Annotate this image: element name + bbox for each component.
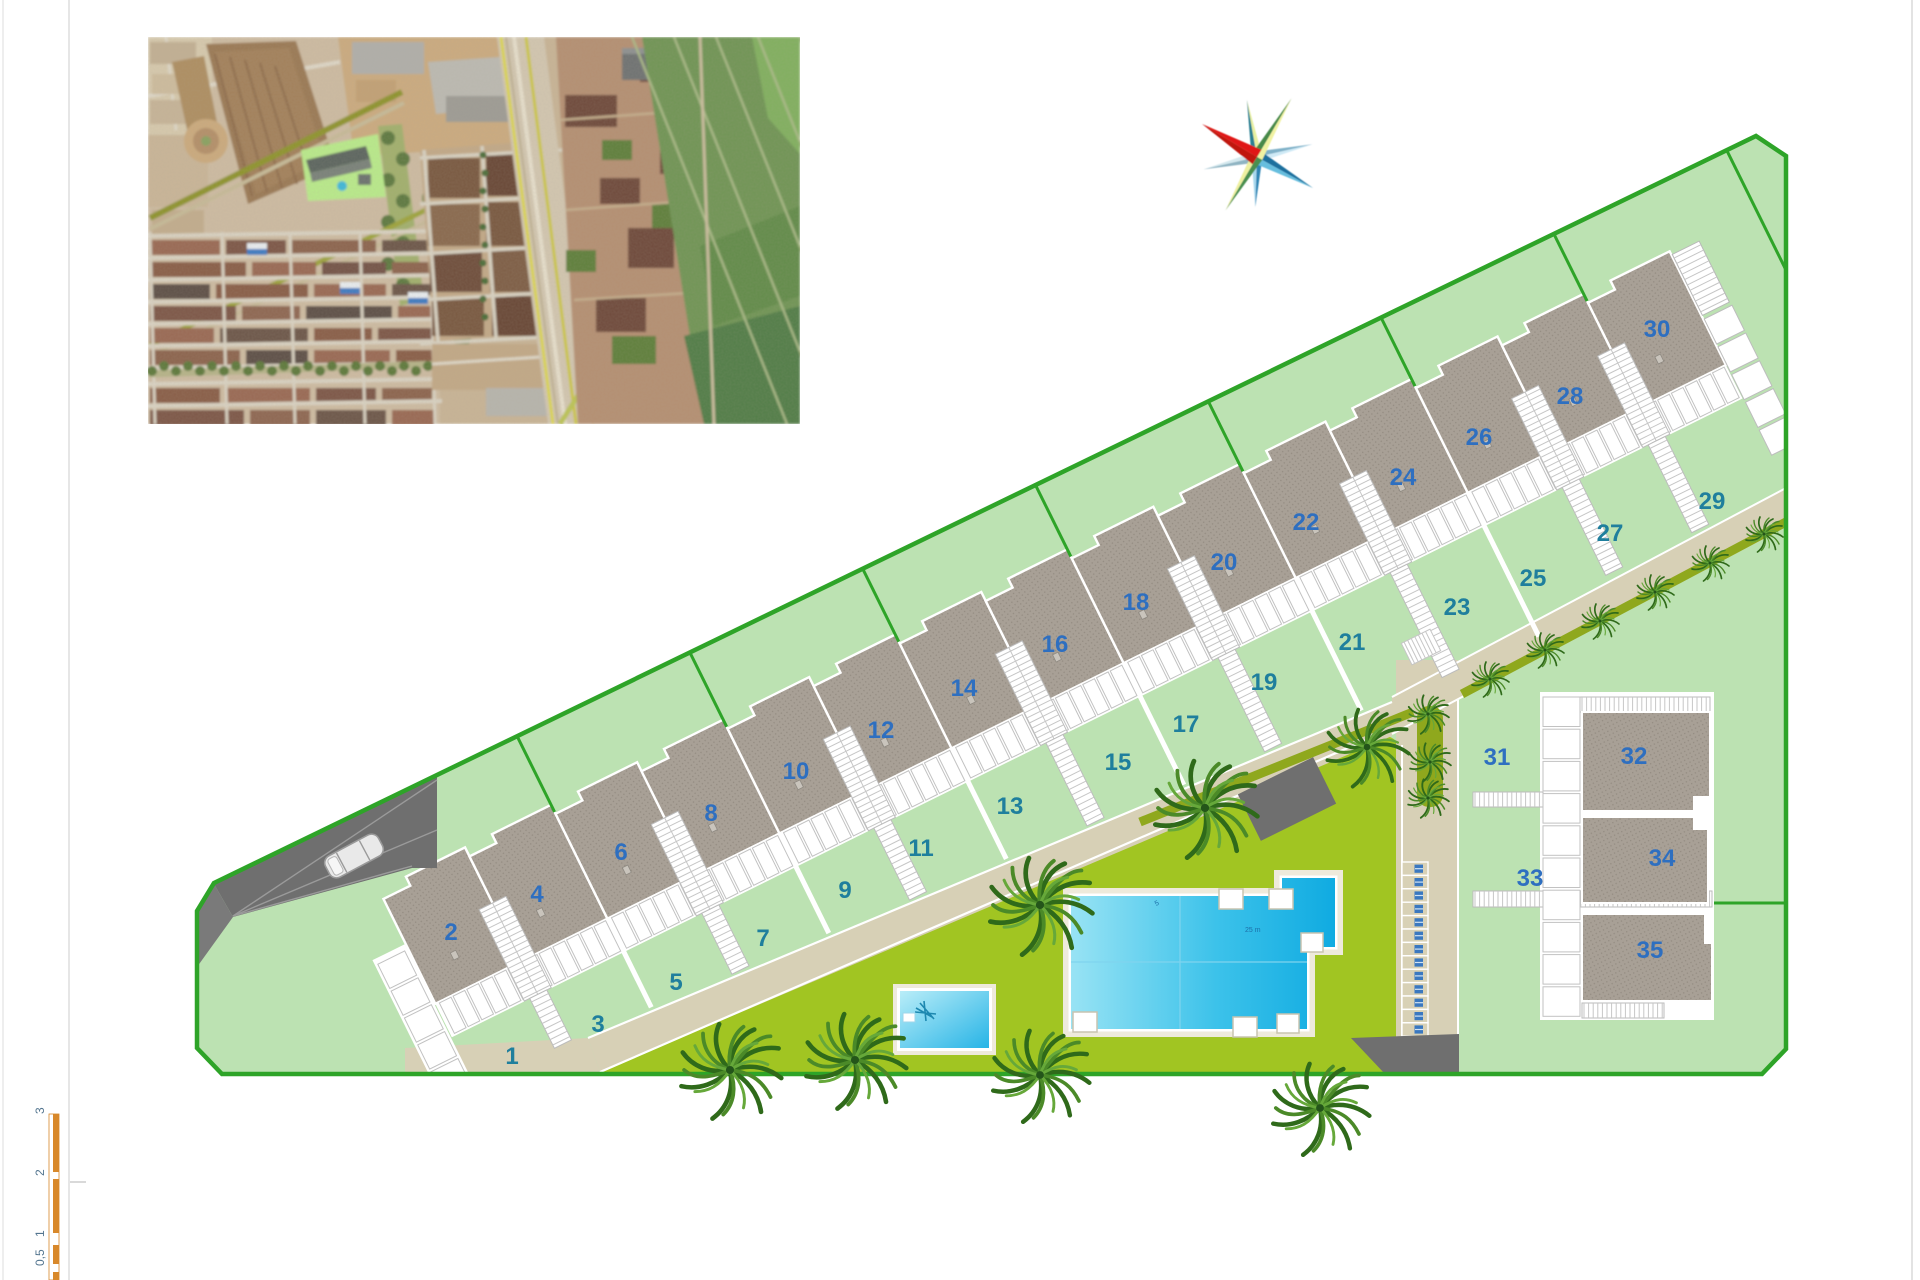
svg-text:25 m: 25 m: [1245, 927, 1261, 934]
svg-text:25: 25: [1520, 565, 1547, 592]
svg-text:21: 21: [1339, 629, 1366, 656]
svg-text:26: 26: [1466, 424, 1493, 451]
svg-text:17: 17: [1173, 711, 1200, 738]
svg-text:23: 23: [1444, 594, 1471, 621]
svg-text:12: 12: [868, 717, 895, 744]
svg-text:18: 18: [1123, 589, 1150, 616]
svg-text:32: 32: [1621, 743, 1648, 770]
svg-text:22: 22: [1293, 509, 1320, 536]
svg-text:35: 35: [1637, 937, 1664, 964]
svg-text:3: 3: [591, 1011, 604, 1038]
svg-text:15: 15: [1105, 749, 1132, 776]
svg-text:1: 1: [33, 1230, 47, 1237]
svg-text:7: 7: [756, 925, 769, 952]
svg-text:33: 33: [1517, 865, 1544, 892]
svg-text:14: 14: [951, 675, 978, 702]
svg-text:8: 8: [704, 800, 717, 827]
svg-text:34: 34: [1649, 845, 1676, 872]
svg-text:6: 6: [614, 839, 627, 866]
svg-text:9: 9: [838, 877, 851, 904]
svg-text:24: 24: [1390, 464, 1417, 491]
svg-text:2: 2: [444, 919, 457, 946]
svg-text:13: 13: [997, 793, 1024, 820]
svg-text:5: 5: [669, 969, 682, 996]
svg-text:10: 10: [783, 758, 810, 785]
svg-text:30: 30: [1644, 316, 1671, 343]
svg-text:27: 27: [1597, 520, 1624, 547]
svg-text:0,5: 0,5: [33, 1249, 47, 1266]
svg-text:20: 20: [1211, 549, 1238, 576]
svg-text:11: 11: [908, 835, 933, 862]
svg-text:31: 31: [1484, 744, 1511, 771]
svg-text:16: 16: [1042, 631, 1069, 658]
svg-text:3: 3: [33, 1107, 47, 1114]
svg-text:28: 28: [1557, 383, 1584, 410]
svg-text:1: 1: [505, 1043, 518, 1070]
svg-text:2: 2: [33, 1169, 47, 1176]
svg-text:29: 29: [1699, 488, 1726, 515]
svg-text:19: 19: [1251, 669, 1278, 696]
svg-text:4: 4: [530, 881, 544, 908]
